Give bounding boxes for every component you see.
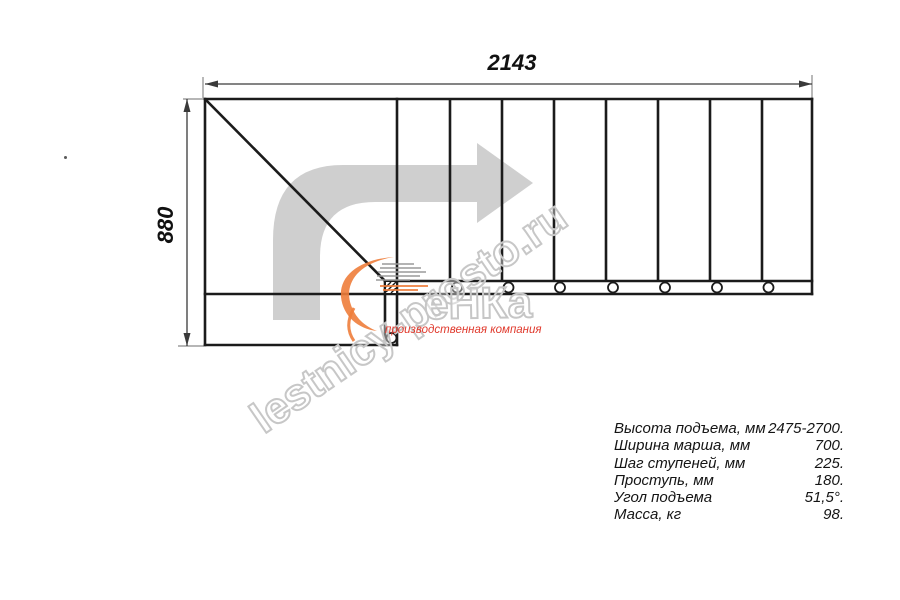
spec-row-mass: Масса, кг 98. [614, 506, 844, 523]
stair-plan-page: lestnicy-prosto.ru еНКа производственная… [0, 0, 900, 600]
spec-label: Угол подъема [614, 489, 712, 506]
spec-label: Шаг ступеней, мм [614, 455, 745, 472]
spec-row-step-pitch: Шаг ступеней, мм 225. [614, 455, 844, 472]
spec-row-height: Высота подъема, мм 2475-2700. [614, 420, 844, 437]
specs-table: Высота подъема, мм 2475-2700. Ширина мар… [614, 420, 844, 524]
dimension-width-label: 2143 [462, 50, 562, 76]
spec-value: 700. [815, 437, 844, 454]
hatched-post [385, 281, 397, 294]
logo-text: еНКа [424, 280, 533, 328]
spec-row-march-width: Ширина марша, мм 700. [614, 437, 844, 454]
spec-label: Масса, кг [614, 506, 681, 523]
spec-value: 51,5°. [805, 489, 844, 506]
spec-label: Ширина марша, мм [614, 437, 750, 454]
dimension-height-label: 880 [153, 187, 179, 263]
spec-value: 180. [815, 472, 844, 489]
spec-row-tread: Проступь, мм 180. [614, 472, 844, 489]
spec-value: 225. [815, 455, 844, 472]
spec-row-angle: Угол подъема 51,5°. [614, 489, 844, 506]
artifact-dot [64, 156, 67, 159]
spec-label: Высота подъема, мм [614, 420, 766, 437]
spec-value: 2475-2700. [768, 420, 844, 437]
spec-value: 98. [823, 506, 844, 523]
logo-subtitle: производственная компания [385, 324, 605, 336]
spec-label: Проступь, мм [614, 472, 714, 489]
